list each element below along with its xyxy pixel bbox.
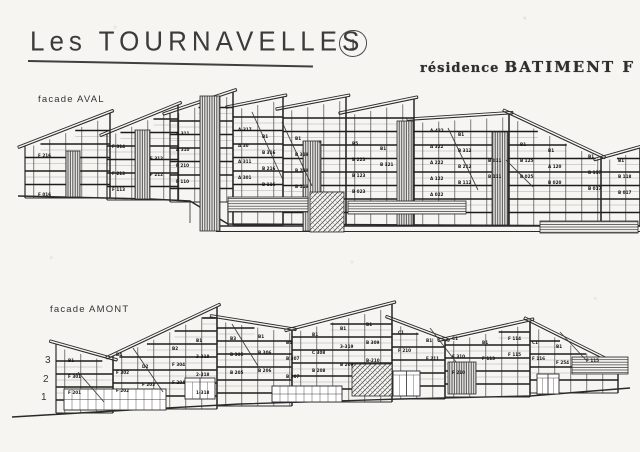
aval-unit-label: A 311 [176,131,190,136]
aval-unit-label: B 125 [520,158,533,163]
aval-unit-label: A 311 [238,159,252,164]
amont-unit-label: B 206 [258,368,271,373]
amont-unit-label: B1 [482,340,488,345]
aval-unit-label: A-422 [430,128,444,133]
aval-unit-label: B 023 [352,189,365,194]
amont-unit-label: B1 [196,338,202,343]
aval-unit-label: × [318,139,322,144]
aval-unit-label: B 011 [488,158,501,163]
aval-unit-label: B 117 [588,170,601,175]
aval-unit-label: B 111 [488,174,501,179]
amont-unit-label: C1 [398,330,404,335]
amont-unit-label: B 209 [340,362,353,367]
amont-unit-label: C1 [532,340,538,345]
amont-unit-label: F 204 [172,380,185,385]
aval-unit-label: B 116 [262,182,275,187]
aval-unit-label: B 316 [262,150,275,155]
floor-number-3: 3 [45,355,51,366]
aval-unit-label: B 025 [520,174,533,179]
amont-unit-label: F 211 [426,356,439,361]
aval-unit-label: B1 [618,158,624,163]
amont-unit-label: B1 [68,358,74,363]
aval-unit-label: F 210 [176,163,189,168]
aval-unit-label: A 022 [430,192,444,197]
amont-unit-label: F 310 [452,354,465,359]
floor-number-1: 1 [41,392,47,403]
amont-unit-label: B 307 [286,356,299,361]
aval-unit-label: A 222 [430,160,444,165]
amont-unit-label: 1-318 [196,390,209,395]
aval-unit-label: B1 [295,136,301,141]
aval-unit-label: B1 [458,132,464,137]
aval-unit-label: B 020 [548,180,561,185]
amont-unit-label: B2 [172,346,178,351]
aval-unit-label: A 322 [430,144,444,149]
amont-unit-label: 3-319 [340,344,353,349]
amont-unit-label: F 115 [508,352,521,357]
aval-unit-label: B1 [262,134,268,139]
aval-unit-label: B 112 [458,180,471,185]
amont-unit-label: F 301 [68,374,81,379]
aval-unit-label: F 216 [38,153,51,158]
amont-unit-label: B 205 [230,370,243,375]
amont-unit-label: D2 [142,364,148,369]
aval-unit-label: F 016 [38,192,51,197]
amont-unit-label: B 208 [312,368,325,373]
aval-unit-label: F 314 [112,144,125,149]
amont-unit-label: B 207 [286,374,299,379]
amont-unit-label: B4 [286,340,292,345]
amont-unit-label: B1 [312,332,318,337]
floor-number-2: 2 [43,374,49,385]
amont-unit-label: F 114 [508,336,521,341]
amont-unit-label: F 113 [482,356,495,361]
facade-amont-drawing: B1F 301F 201B4F 302F 202D2F 203B2F 304F … [12,301,630,417]
aval-unit-label: B 216 [262,166,275,171]
amont-unit-label: C1 [452,336,458,341]
aval-unit-label: A 310 [176,147,190,152]
aval-unit-label: B1 [588,154,594,159]
amont-unit-label: B4 [116,352,122,357]
amont-unit-label: F 302 [116,370,129,375]
amont-unit-label: B1 [366,322,372,327]
aval-unit-label: B 017 [618,190,631,195]
aval-unit-label: B1 [380,146,386,151]
amont-unit-label: B1 [426,338,432,343]
amont-unit-label: F 115 [586,358,599,363]
amont-unit-label: B3 [230,336,236,341]
amont-unit-label: B 306 [258,350,271,355]
aval-unit-label: B 118 [618,174,631,179]
aval-unit-label: B 123 [352,173,365,178]
amont-unit-label: F 116 [532,356,545,361]
aval-unit-label: A 301 [238,175,252,180]
amont-unit-label: F 304 [172,362,185,367]
facade-amont-label: facade AMONT [50,304,129,315]
aval-unit-label: A-317 [238,127,252,132]
amont-unit-label: B-210 [366,358,380,363]
elevation-linework: F 216F 016F 314F 213F 113F 312F 212A 311… [0,0,640,452]
facade-aval-drawing: F 216F 016F 314F 213F 113F 312F 212A 311… [18,88,640,233]
aval-unit-label: B 219 [295,168,308,173]
amont-unit-label: B1 [556,344,562,349]
amont-unit-label: F 202 [116,388,129,393]
aval-unit-label: A 122 [430,176,444,181]
aval-unit-label: B 312 [458,148,471,153]
drawing-sheet: Les TOURNAVELLES 1 résidence BATIMENT F … [0,0,640,452]
aval-unit-label: B1 [548,148,554,153]
aval-unit-label: B5 [352,141,358,146]
aval-unit-label: B 223 [352,157,365,162]
aval-unit-label: F 212 [150,172,163,177]
amont-unit-label: B 309 [366,340,379,345]
aval-unit-label: B 121 [380,162,393,167]
amont-unit-label: B 305 [230,352,243,357]
aval-unit-label: F 312 [150,156,163,161]
aval-unit-label: B 119 [295,184,308,189]
amont-unit-label: F 254 [556,360,569,365]
facade-aval-label: facade AVAL [38,94,105,105]
amont-unit-label: B1 [340,326,346,331]
aval-unit-label: A 30 [238,143,249,148]
amont-unit-label: C 308 [312,350,325,355]
aval-unit-label: B 212 [458,164,471,169]
amont-unit-label: F 201 [68,390,81,395]
aval-unit-label: B 017 [588,186,601,191]
aval-unit-label: F 110 [176,179,189,184]
aval-unit-label: B 319 [295,152,308,157]
amont-unit-label: F 210 [398,348,411,353]
amont-unit-label: 3-318 [196,354,209,359]
amont-unit-label: B1 [258,334,264,339]
aval-unit-label: F 113 [112,187,125,192]
amont-unit-label: 2-318 [196,372,209,377]
aval-unit-label: B1 [520,142,526,147]
aval-unit-label: F 213 [112,171,125,176]
amont-unit-label: F 203 [142,382,155,387]
amont-unit-label: F 210 [452,370,465,375]
aval-unit-label: A 120 [548,164,562,169]
